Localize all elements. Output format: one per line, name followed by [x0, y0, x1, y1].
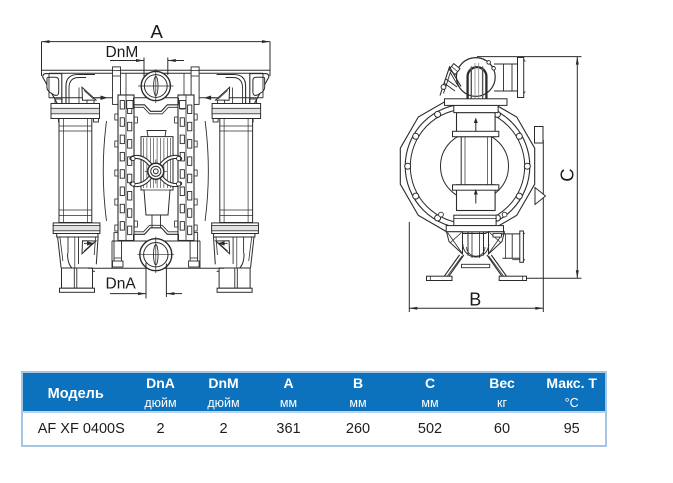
- svg-text:C: C: [556, 168, 577, 181]
- svg-text:DnM: DnM: [106, 44, 139, 61]
- svg-text:A: A: [151, 21, 164, 42]
- svg-text:DnA: DnA: [106, 275, 137, 292]
- svg-text:B: B: [469, 290, 481, 310]
